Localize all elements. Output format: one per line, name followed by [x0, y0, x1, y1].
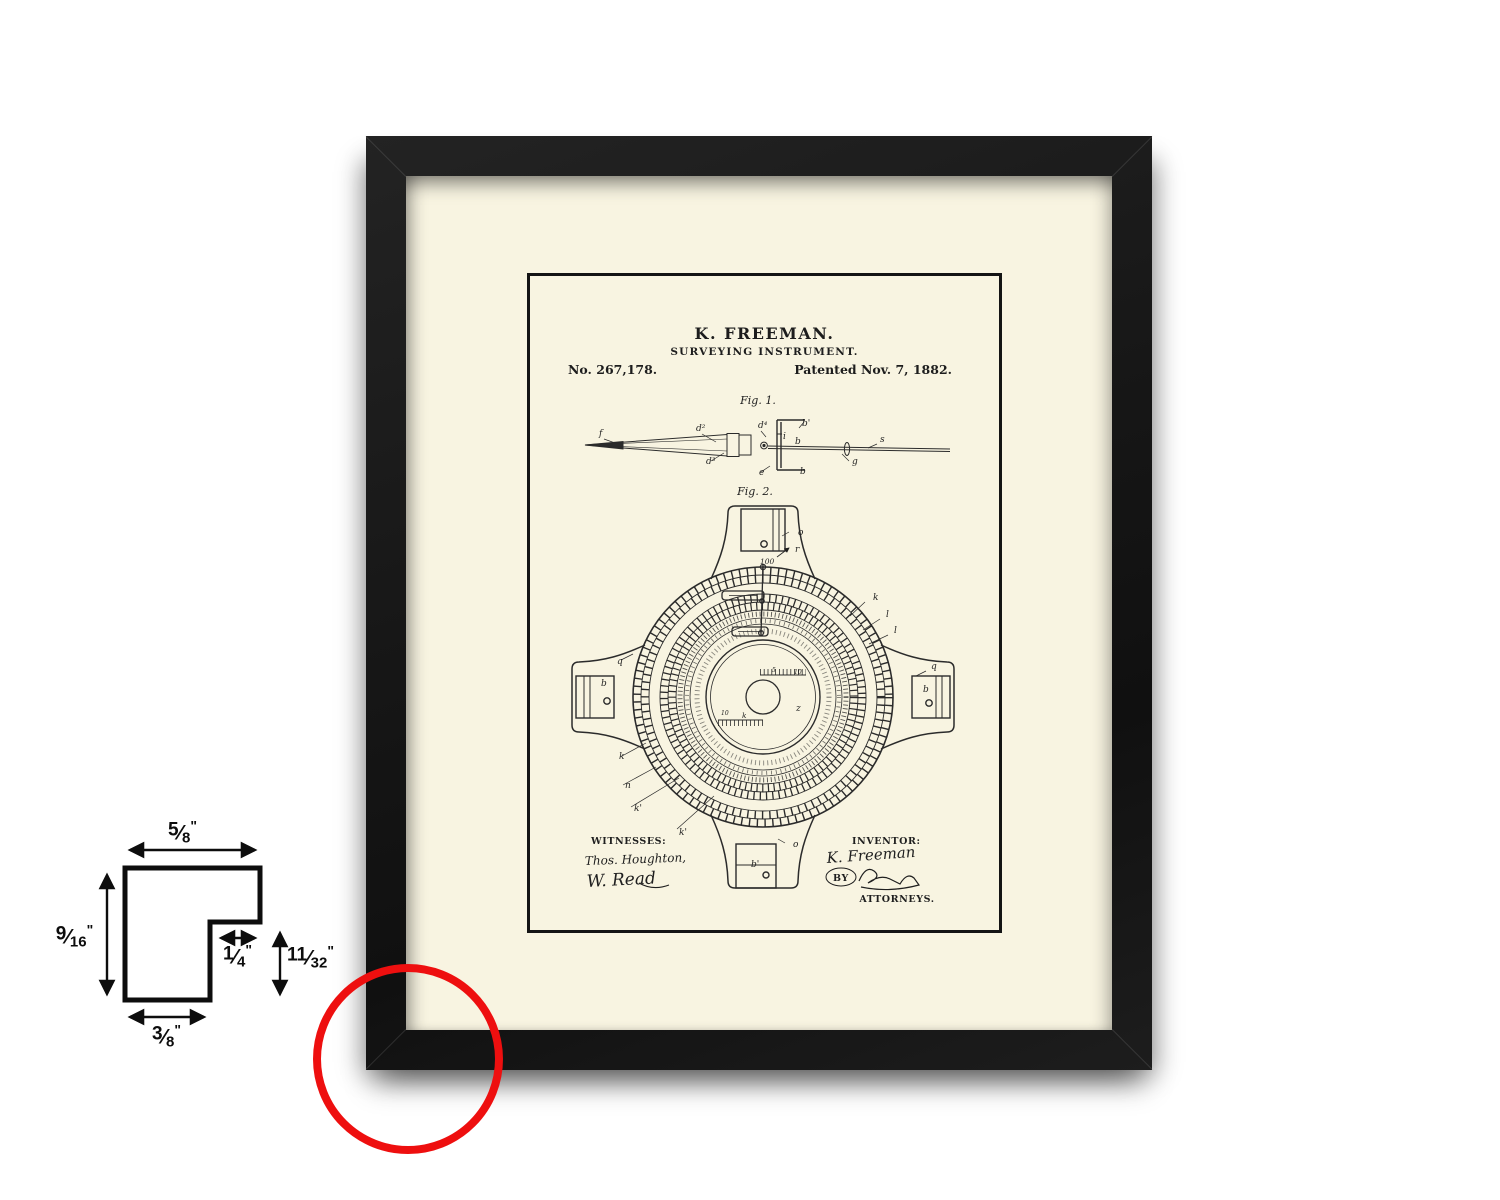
fig2-caption: Fig. 2. [736, 485, 773, 498]
patent-sheet: K. FREEMAN. SURVEYING INSTRUMENT. No. 26… [527, 273, 1002, 933]
attorneys-label: ATTORNEYS. [858, 894, 934, 905]
witness-signature-1: Thos. Houghton, [585, 850, 687, 868]
picture-frame: K. FREEMAN. SURVEYING INSTRUMENT. No. 26… [366, 136, 1152, 1070]
figure-annotation-label: 10 [721, 710, 729, 717]
mat-board: K. FREEMAN. SURVEYING INSTRUMENT. No. 26… [406, 176, 1112, 1030]
figure-annotation-label: d⁴ [758, 421, 768, 431]
signature-block: WITNESSES: Thos. Houghton, W. Read INVEN… [585, 836, 935, 905]
dim-label-top: 5⁄8" [168, 818, 196, 847]
figure-annotation-label: 10 [794, 669, 802, 676]
figure-annotation-label: z [795, 704, 801, 714]
figure-annotation-label: q [931, 662, 937, 672]
figure-annotation-label: k' [679, 828, 687, 838]
witnesses-heading: WITNESSES: [590, 836, 666, 847]
figure-annotation-label: f [598, 429, 604, 439]
fig1-drawing [585, 420, 950, 470]
product-image: K. FREEMAN. SURVEYING INSTRUMENT. No. 26… [0, 0, 1500, 1200]
dim-label-bottom: 3⁄8" [152, 1022, 180, 1051]
figure-annotation-label: b' [802, 419, 810, 429]
figure-annotation-label: k [873, 593, 878, 603]
frame-miter-line [1112, 136, 1153, 177]
figure-annotation-label: 5 [772, 667, 776, 674]
figure-annotation-label: e [759, 468, 764, 478]
figure-annotation-label: b [800, 467, 806, 477]
figure-annotation-label: o [798, 528, 804, 538]
frame-miter-line [1112, 1029, 1153, 1070]
moulding-profile-shape [125, 868, 260, 1000]
figure-annotation-label: b' [751, 860, 759, 870]
dim-label-left: 9⁄16" [56, 922, 92, 951]
figure-annotation-label: k [742, 711, 747, 720]
fig1-annotations: fd²d³d⁴b'ibbegs [598, 419, 885, 478]
figure-annotation-label: i [783, 432, 786, 442]
patent-drawing-svg: Fig. 1. fd²d [527, 273, 1002, 933]
figure-annotation-label: l [894, 626, 897, 636]
figure-annotation-label: 100 [760, 557, 775, 566]
figure-annotation-label: b [795, 437, 801, 447]
corner-highlight-circle [313, 964, 503, 1154]
figure-annotation-label: d³ [706, 457, 716, 467]
figure-annotation-label: g [852, 457, 858, 467]
dim-label-notch: 1⁄4" [223, 942, 251, 971]
figure-annotation-label: o [793, 840, 799, 850]
figure-annotation-label: k' [634, 804, 642, 814]
witness-signature-2: W. Read [586, 868, 656, 892]
figure-annotation-label: n [625, 781, 631, 791]
figure-annotation-label: d² [696, 424, 706, 434]
fig1-caption: Fig. 1. [739, 394, 776, 407]
frame-miter-line [365, 136, 406, 177]
inventor-signature: K. Freeman [825, 843, 916, 867]
dim-label-right: 11⁄32" [287, 943, 333, 972]
figure-annotation-label: r [795, 545, 800, 555]
figure-annotation-label: b [923, 685, 929, 695]
attorney-signature [859, 869, 919, 889]
by-label: BY [833, 873, 849, 884]
figure-annotation-label: q [617, 657, 623, 667]
figure-annotation-label: l [886, 610, 889, 620]
figure-annotation-label: b [601, 679, 607, 689]
figure-annotation-label: s [880, 435, 885, 445]
figure-annotation-label: k [619, 752, 624, 762]
